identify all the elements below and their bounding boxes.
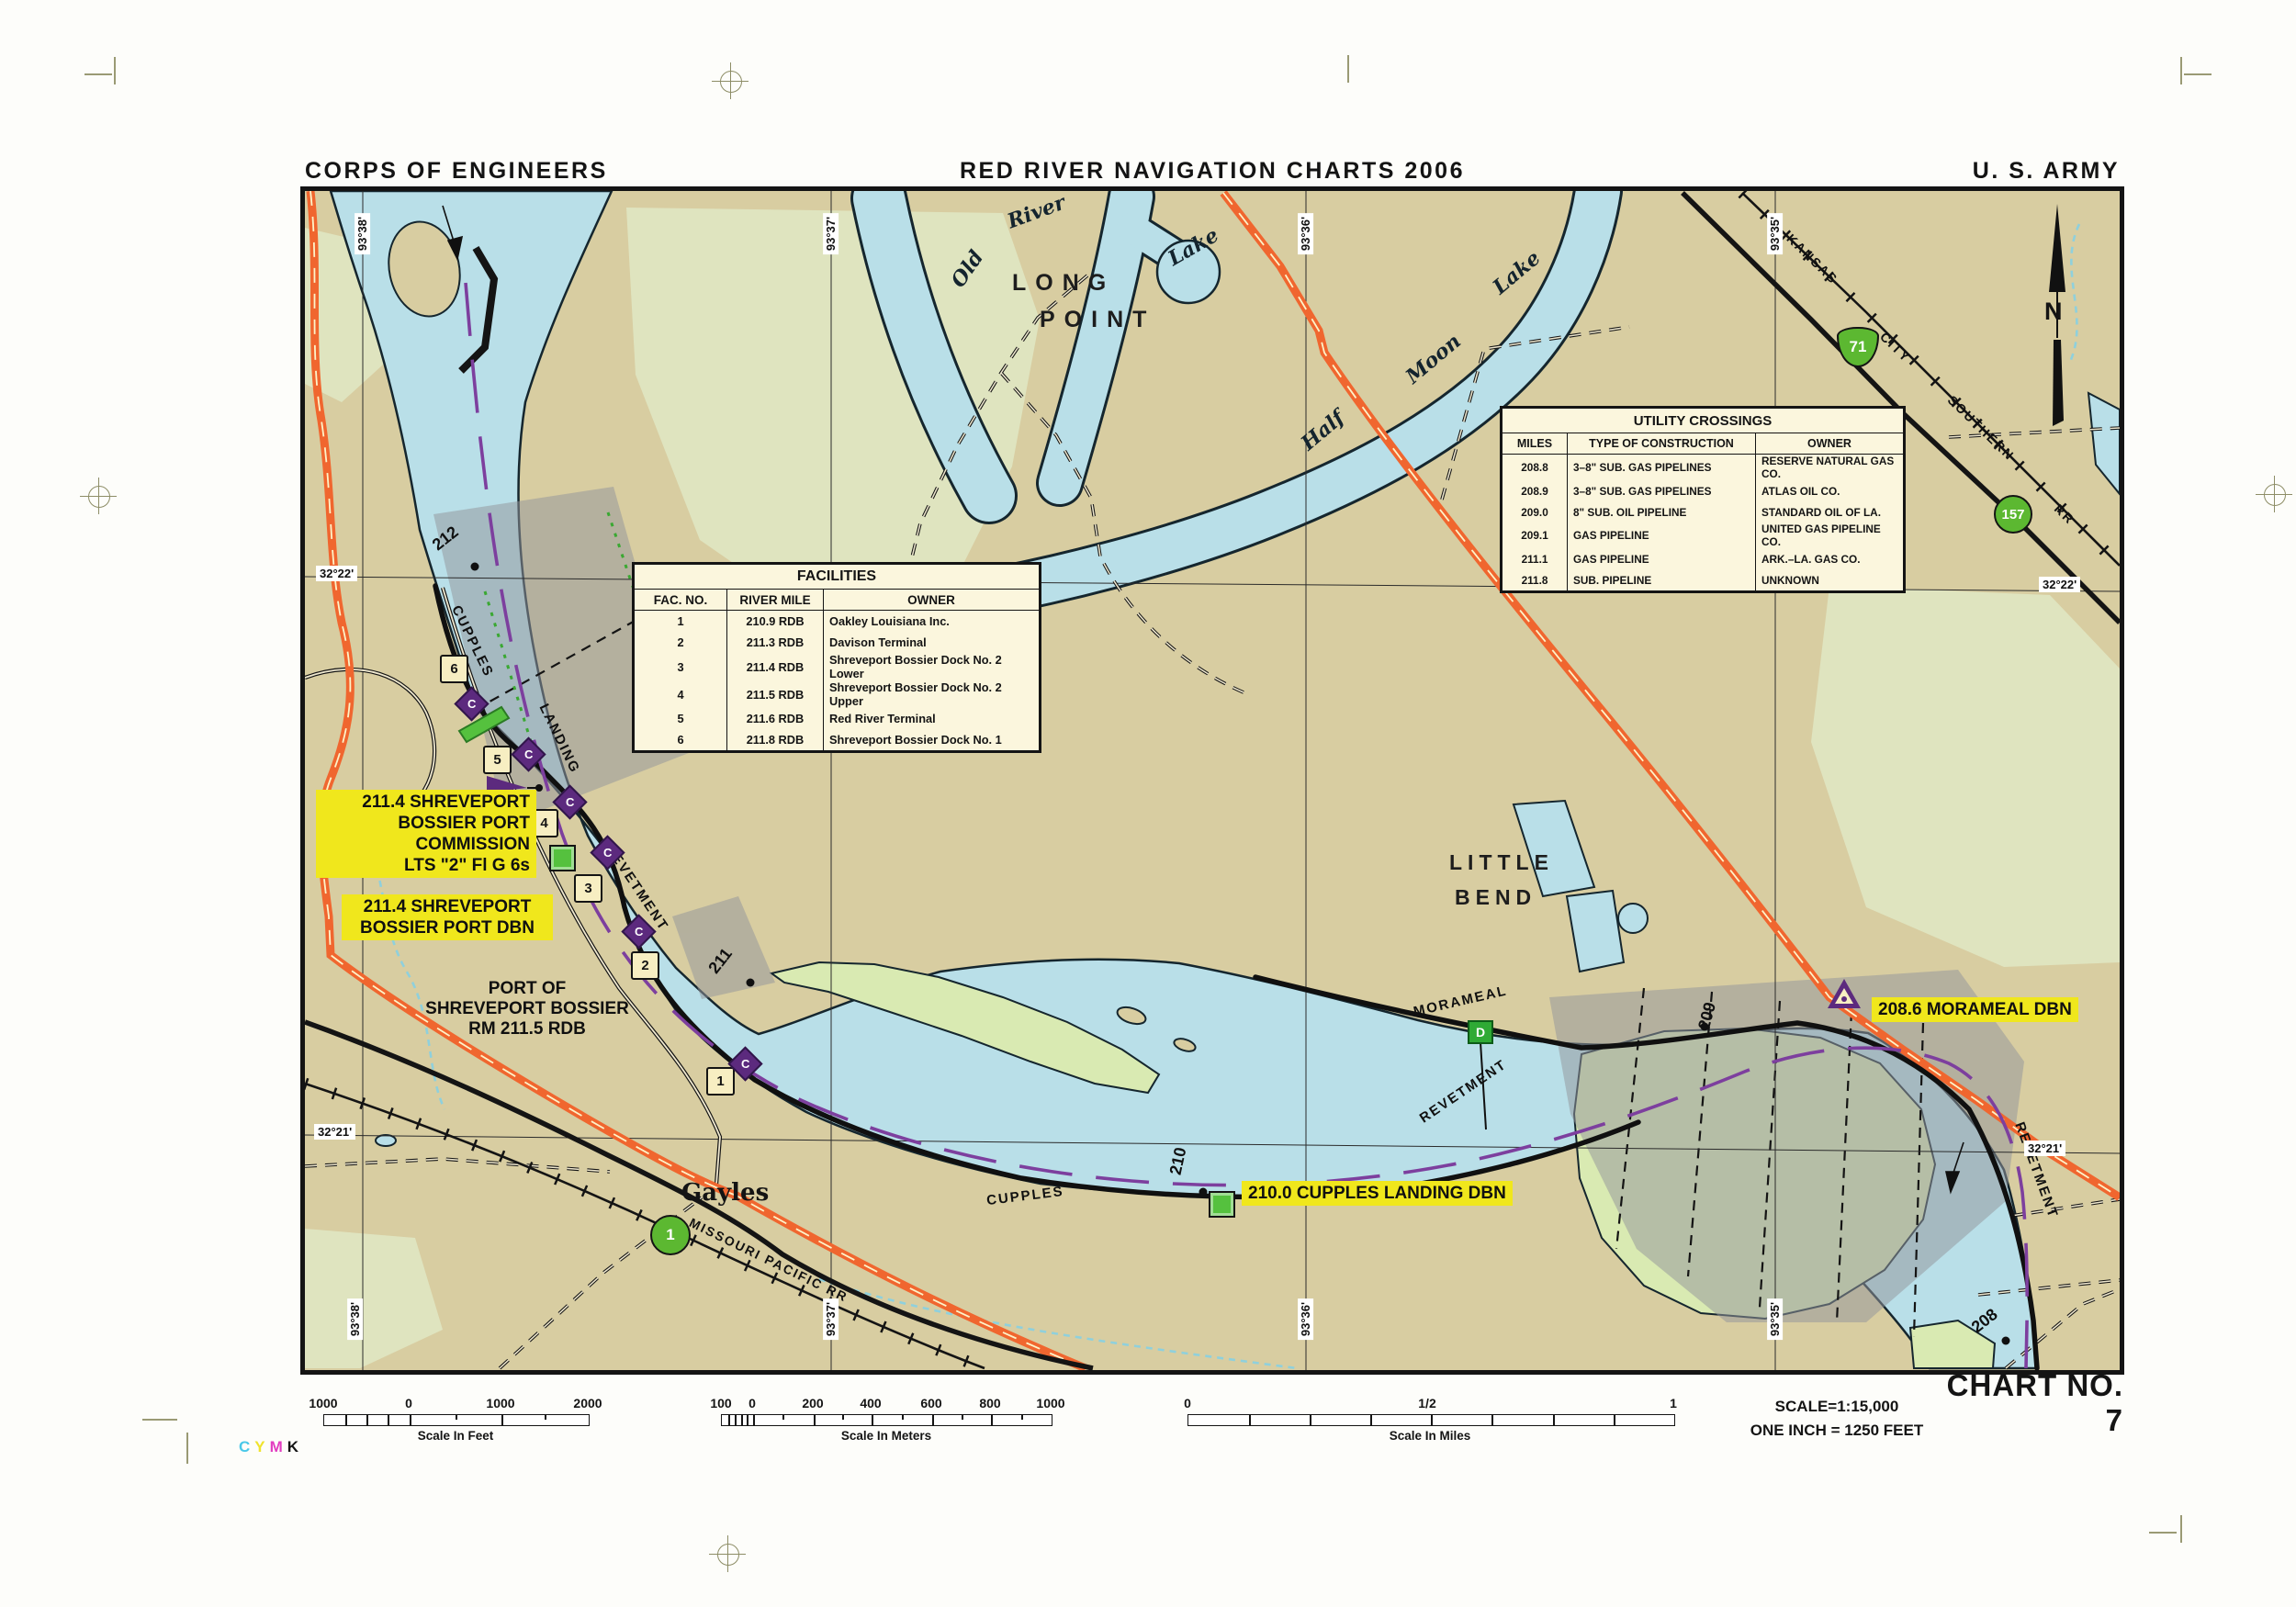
cell: 208.9 (1502, 480, 1568, 501)
cell: 8" SUB. OIL PIPELINE (1568, 501, 1756, 523)
facility-marker-2: 2 (631, 951, 659, 980)
daymark-c-label: C (566, 795, 574, 809)
daymark-c-label: C (524, 747, 533, 761)
port-line: SHREVEPORT BOSSIER (389, 999, 665, 1019)
print-color-marks: CYMK (239, 1438, 303, 1456)
header-right: U. S. ARMY (1973, 158, 2120, 185)
facility-marker-label: 4 (540, 815, 547, 831)
table-row: 211.8SUB. PIPELINEUNKNOWN (1502, 569, 1905, 592)
coord-lat-3221-right: 32°21' (2024, 1141, 2065, 1156)
print-c: C (239, 1438, 254, 1455)
cell: Shreveport Bossier Dock No. 1 (824, 729, 1041, 752)
map-canvas: LONG POINT LITTLE BEND Gayles Old River … (300, 186, 2124, 1375)
coord-lon-9338-bot: 93°38' (347, 1298, 363, 1340)
daymark-c-label: C (603, 846, 612, 860)
cell: 1 (634, 611, 727, 633)
crop-mark (2149, 1532, 2177, 1534)
la-1-label: 1 (666, 1226, 674, 1244)
crop-mark (2180, 57, 2182, 84)
coord-lon-9336-top: 93°36' (1298, 213, 1313, 254)
dbn-marker-cupples (1209, 1191, 1235, 1218)
map-scale-text: SCALE=1:15,000 (1727, 1398, 1947, 1416)
facility-marker-3: 3 (574, 874, 602, 903)
crop-mark (186, 1433, 188, 1464)
annotation-line: 211.4 SHREVEPORT (322, 792, 530, 813)
col-header: TYPE OF CONSTRUCTION (1568, 433, 1756, 455)
coord-lat-3221-left: 32°21' (314, 1124, 355, 1140)
cell: 211.4 RDB (727, 653, 824, 680)
label-little-bend-1: LITTLE (1449, 850, 1554, 875)
crop-mark (84, 73, 112, 75)
facility-marker-5: 5 (483, 746, 512, 774)
scale-bar (721, 1414, 1052, 1426)
table-row: 211.1GAS PIPELINEARK.–LA. GAS CO. (1502, 548, 1905, 569)
scale-label: 600 (920, 1396, 941, 1410)
col-header: OWNER (1756, 433, 1905, 455)
cell: 210.9 RDB (727, 611, 824, 633)
facility-marker-1: 1 (706, 1067, 735, 1096)
daymark-c-label: C (467, 697, 476, 711)
utility-title: UTILITY CROSSINGS (1502, 408, 1905, 433)
annotation-morameal-dbn: 208.6 MORAMEAL DBN (1872, 997, 2078, 1022)
cell: 3–8" SUB. GAS PIPELINES (1568, 455, 1756, 481)
cell: 211.6 RDB (727, 708, 824, 729)
cell: GAS PIPELINE (1568, 523, 1756, 548)
cell: 2 (634, 632, 727, 653)
crop-mark (142, 1419, 177, 1421)
header-title: RED RIVER NAVIGATION CHARTS 2006 (305, 158, 2120, 185)
cell: Shreveport Bossier Dock No. 2 Lower (824, 653, 1041, 680)
label-gayles: Gayles (681, 1179, 769, 1207)
cell: SUB. PIPELINE (1568, 569, 1756, 592)
table-row: 3211.4 RDBShreveport Bossier Dock No. 2 … (634, 653, 1041, 680)
coord-lon-9337-bot: 93°37' (823, 1298, 838, 1340)
label-little-bend-2: BEND (1455, 885, 1536, 910)
cell: ARK.–LA. GAS CO. (1756, 548, 1905, 569)
table-row: 1210.9 RDBOakley Louisiana Inc. (634, 611, 1041, 633)
table-row: 208.93–8" SUB. GAS PIPELINESATLAS OIL CO… (1502, 480, 1905, 501)
table-row: 2211.3 RDBDavison Terminal (634, 632, 1041, 653)
facilities-title: FACILITIES (634, 564, 1041, 590)
col-header: RIVER MILE (727, 590, 824, 611)
la-157-shield: 157 (1994, 495, 2032, 534)
north-label: N (2044, 298, 2063, 326)
cell: Red River Terminal (824, 708, 1041, 729)
cell: 209.1 (1502, 523, 1568, 548)
utility-crossings-table: UTILITY CROSSINGS MILES TYPE OF CONSTRUC… (1500, 406, 1906, 593)
port-line: RM 211.5 RDB (389, 1019, 665, 1039)
scale-label: 0 (405, 1396, 412, 1410)
label-port-of-shreveport: PORT OF SHREVEPORT BOSSIER RM 211.5 RDB (389, 979, 665, 1039)
scale-caption: Scale In Miles (1390, 1429, 1471, 1443)
table-row: 208.83–8" SUB. GAS PIPELINESRESERVE NATU… (1502, 455, 1905, 481)
col-header: MILES (1502, 433, 1568, 455)
facility-marker-label: 1 (716, 1073, 724, 1089)
facility-marker-label: 6 (450, 661, 457, 677)
table-row: 4211.5 RDBShreveport Bossier Dock No. 2 … (634, 680, 1041, 708)
annotation-line: BOSSIER PORT DBN (348, 917, 546, 938)
col-header: OWNER (824, 590, 1041, 611)
registration-target (717, 68, 743, 94)
scale-label: 1000 (1036, 1396, 1064, 1410)
cell: 208.8 (1502, 455, 1568, 481)
daymark-c-label: C (635, 925, 643, 938)
chart-header: CORPS OF ENGINEERS RED RIVER NAVIGATION … (305, 158, 2120, 185)
annotation-line: LTS "2" Fl G 6s (322, 855, 530, 876)
cell: 5 (634, 708, 727, 729)
scale-caption: Scale In Feet (418, 1429, 494, 1443)
port-line: PORT OF (389, 979, 665, 999)
col-header: FAC. NO. (634, 590, 727, 611)
crop-mark (1347, 55, 1349, 83)
cell: 209.0 (1502, 501, 1568, 523)
scale-label: 100 (710, 1396, 731, 1410)
cell: 211.5 RDB (727, 680, 824, 708)
table-row: 209.08" SUB. OIL PIPELINESTANDARD OIL OF… (1502, 501, 1905, 523)
facility-marker-label: 3 (584, 881, 591, 896)
dbn-marker-port (549, 845, 576, 871)
annotation-port-commission: 211.4 SHREVEPORT BOSSIER PORT COMMISSION… (316, 790, 536, 878)
print-m: M (270, 1438, 287, 1455)
facility-marker-6: 6 (440, 655, 468, 683)
table-row: 6211.8 RDBShreveport Bossier Dock No. 1 (634, 729, 1041, 752)
facility-marker-label: 2 (641, 958, 648, 973)
annotation-line: 211.4 SHREVEPORT (348, 896, 546, 917)
annotation-port-dbn: 211.4 SHREVEPORT BOSSIER PORT DBN (342, 894, 553, 940)
coord-lon-9335-top: 93°35' (1767, 213, 1783, 254)
table-row: 5211.6 RDBRed River Terminal (634, 708, 1041, 729)
facilities-table: FACILITIES FAC. NO. RIVER MILE OWNER 121… (632, 562, 1041, 753)
coord-lon-9335-bot: 93°35' (1767, 1298, 1783, 1340)
coord-lon-9336-bot: 93°36' (1298, 1298, 1313, 1340)
crop-mark (2184, 73, 2212, 75)
d-flag-marker: D (1468, 1020, 1493, 1044)
cell: 6 (634, 729, 727, 752)
scale-label: 1 (1670, 1396, 1677, 1410)
cell: 3–8" SUB. GAS PIPELINES (1568, 480, 1756, 501)
map-inch-text: ONE INCH = 1250 FEET (1727, 1422, 1947, 1440)
scale-bar (323, 1414, 590, 1426)
scale-label: 0 (1184, 1396, 1191, 1410)
cell: UNKNOWN (1756, 569, 1905, 592)
la-157-label: 157 (2001, 507, 2024, 523)
scale-caption: Scale In Meters (841, 1429, 931, 1443)
registration-target (715, 1541, 740, 1567)
label-long-point-1: LONG (1012, 270, 1115, 297)
cell: GAS PIPELINE (1568, 548, 1756, 569)
annotation-line: COMMISSION (322, 834, 530, 855)
coord-lat-3222-left: 32°22' (316, 566, 357, 581)
annotation-line: BOSSIER PORT (322, 813, 530, 834)
cell: Oakley Louisiana Inc. (824, 611, 1041, 633)
scale-label: 1000 (486, 1396, 514, 1410)
cell: UNITED GAS PIPELINE CO. (1756, 523, 1905, 548)
cell: 4 (634, 680, 727, 708)
print-y: Y (254, 1438, 269, 1455)
cell: 211.3 RDB (727, 632, 824, 653)
chart-number: CHART NO. 7 (1929, 1368, 2123, 1438)
us-71-label: 71 (1850, 338, 1867, 356)
la-1-shield: 1 (650, 1215, 691, 1255)
scale-label: 400 (860, 1396, 881, 1410)
crop-mark (114, 57, 116, 84)
label-long-point-2: POINT (1040, 307, 1155, 333)
coord-lat-3222-right: 32°22' (2039, 577, 2080, 592)
cell: 211.8 (1502, 569, 1568, 592)
chart-page: CORPS OF ENGINEERS RED RIVER NAVIGATION … (0, 0, 2296, 1607)
coord-lon-9337-top: 93°37' (823, 213, 838, 254)
table-row: 209.1GAS PIPELINEUNITED GAS PIPELINE CO. (1502, 523, 1905, 548)
crop-mark (2180, 1515, 2182, 1543)
cell: Davison Terminal (824, 632, 1041, 653)
cell: Shreveport Bossier Dock No. 2 Upper (824, 680, 1041, 708)
cell: 3 (634, 653, 727, 680)
coord-lon-9338-top: 93°38' (355, 213, 370, 254)
scale-label: 0 (748, 1396, 756, 1410)
d-flag-label: D (1476, 1025, 1485, 1039)
print-k: K (287, 1438, 303, 1455)
scale-label: 200 (802, 1396, 823, 1410)
scale-label: 2000 (573, 1396, 602, 1410)
facility-marker-label: 5 (493, 752, 501, 768)
cell: 211.8 RDB (727, 729, 824, 752)
cell: ATLAS OIL CO. (1756, 480, 1905, 501)
registration-target (2261, 481, 2287, 507)
scale-bar (1187, 1414, 1675, 1426)
cell: 211.1 (1502, 548, 1568, 569)
cell: STANDARD OIL OF LA. (1756, 501, 1905, 523)
daymark-c-label: C (741, 1057, 749, 1071)
annotation-cupples-dbn: 210.0 CUPPLES LANDING DBN (1242, 1181, 1513, 1206)
cell: RESERVE NATURAL GAS CO. (1756, 455, 1905, 481)
scale-label: 1/2 (1418, 1396, 1435, 1410)
scale-label: 800 (979, 1396, 1000, 1410)
scale-label: 1000 (309, 1396, 337, 1410)
registration-target (85, 483, 111, 509)
